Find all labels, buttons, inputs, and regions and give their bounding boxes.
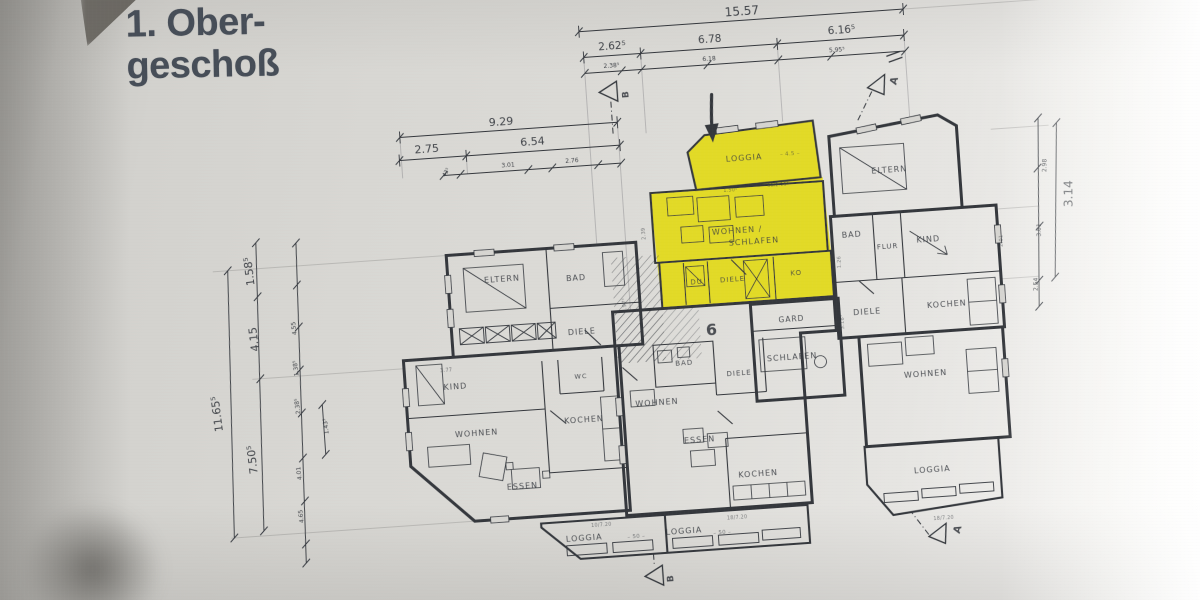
room-label: 6 <box>705 320 718 340</box>
section-marker-b-bottom-icon <box>644 553 664 586</box>
marker-letter: A <box>888 75 901 86</box>
room-label: WOHNEN <box>455 427 499 439</box>
micro-label: – 50 – <box>627 533 645 540</box>
floor-plan-photo: 1. Ober- geschoß <box>0 0 1200 600</box>
dimension-label: 6.78 <box>698 33 722 47</box>
room-label: KOCHEN <box>927 298 967 310</box>
room-label: BAD <box>841 229 862 239</box>
micro-label: 1.97⁵ <box>622 298 629 313</box>
micro-label: 10/7.20 <box>591 522 612 529</box>
dimension-label: 2.54 <box>1033 277 1040 291</box>
dimension-label: 3.01 <box>501 162 515 170</box>
dimension-label: 2.98 <box>1041 159 1048 173</box>
dimension-label: 6.18 <box>702 55 716 63</box>
room-label: LOGGIA <box>914 464 951 476</box>
room-label: KIND <box>916 234 940 245</box>
micro-label: 1.50⁵ <box>723 187 737 194</box>
marker-letter: A <box>952 524 965 535</box>
dimension-label: 3.14 <box>1061 180 1075 207</box>
room-label: ELTERN <box>484 273 520 284</box>
marker-letter: B <box>666 575 676 583</box>
room-label: BAD <box>566 273 587 283</box>
room-label: WOHNEN <box>904 368 948 380</box>
dimension-label: 11.65⁵ <box>209 395 226 432</box>
room-label: ESSEN <box>507 481 539 492</box>
dimension-label: 15.57 <box>724 3 759 19</box>
dimension-label: 2.75 <box>414 142 439 157</box>
dimension-label: 2.38⁵ <box>603 62 620 70</box>
dimension-label: 5.95⁵ <box>829 46 846 54</box>
dimension-label: 6.16⁵ <box>827 23 855 37</box>
room-label: WC <box>574 372 587 381</box>
dimension-label: 4.55 <box>290 321 299 335</box>
micro-label: 18/7.20 <box>727 514 748 521</box>
dimension-label: 43⁵ <box>441 167 452 179</box>
micro-label: 3.18⁵ <box>840 315 847 330</box>
dimension-label: 2.62⁵ <box>598 39 626 53</box>
dimension-label: 4.01 <box>295 466 304 480</box>
dimension-label: 7.50⁵ <box>244 445 260 475</box>
room-label: GARD <box>778 314 805 325</box>
room-label: BAD <box>675 359 693 368</box>
micro-label: 2.39 <box>641 227 648 240</box>
room-label: LOGGIA <box>566 532 603 544</box>
room-label: KO <box>790 269 802 278</box>
room-label: LOGGIA <box>665 525 702 537</box>
room-label: DIELE <box>726 369 752 379</box>
micro-label: 1.26 <box>836 256 842 269</box>
floor-plan-drawing: LOGGIAWOHNEN /SCHLAFENDUDIELEKOELTERNBAD… <box>0 0 1200 600</box>
micro-label: 2.01 <box>998 234 1004 247</box>
room-label: WOHNEN <box>635 397 679 409</box>
room-label: SCHLAFEN <box>767 351 818 363</box>
room-label: DIELE <box>853 306 882 317</box>
room-label: ELTERN <box>871 164 907 175</box>
dimension-label: 3.01 <box>1036 223 1043 237</box>
dimension-label: 9.29 <box>488 115 513 130</box>
dimension-label: 6.54 <box>520 134 545 149</box>
dimension-label: 1.38⁵ <box>292 360 301 377</box>
section-marker-a-bottom-icon <box>911 509 947 545</box>
micro-label: – 50 – <box>713 529 731 536</box>
micro-label: 3.77 <box>440 367 453 374</box>
room-label: FLUR <box>877 242 899 251</box>
dimension-label: 2.76 <box>565 157 579 165</box>
micro-label: 18/7.20 <box>933 515 954 522</box>
room-label: KIND <box>443 381 467 392</box>
room-label: DU <box>690 278 703 287</box>
room-label: KOCHEN <box>564 414 604 426</box>
dimension-label: 4.15 <box>246 326 262 352</box>
section-marker-b-top-icon <box>598 81 620 136</box>
dimension-label: 1.58⁵ <box>241 256 257 286</box>
room-label: KOCHEN <box>738 468 778 480</box>
dimension-label: 1.43⁵ <box>322 418 331 435</box>
room-label: ESSEN <box>684 434 716 445</box>
marker-letter: B <box>621 91 631 99</box>
photo-dark-corner-bottom-left <box>22 504 162 600</box>
room-label: DIELE <box>568 326 597 337</box>
